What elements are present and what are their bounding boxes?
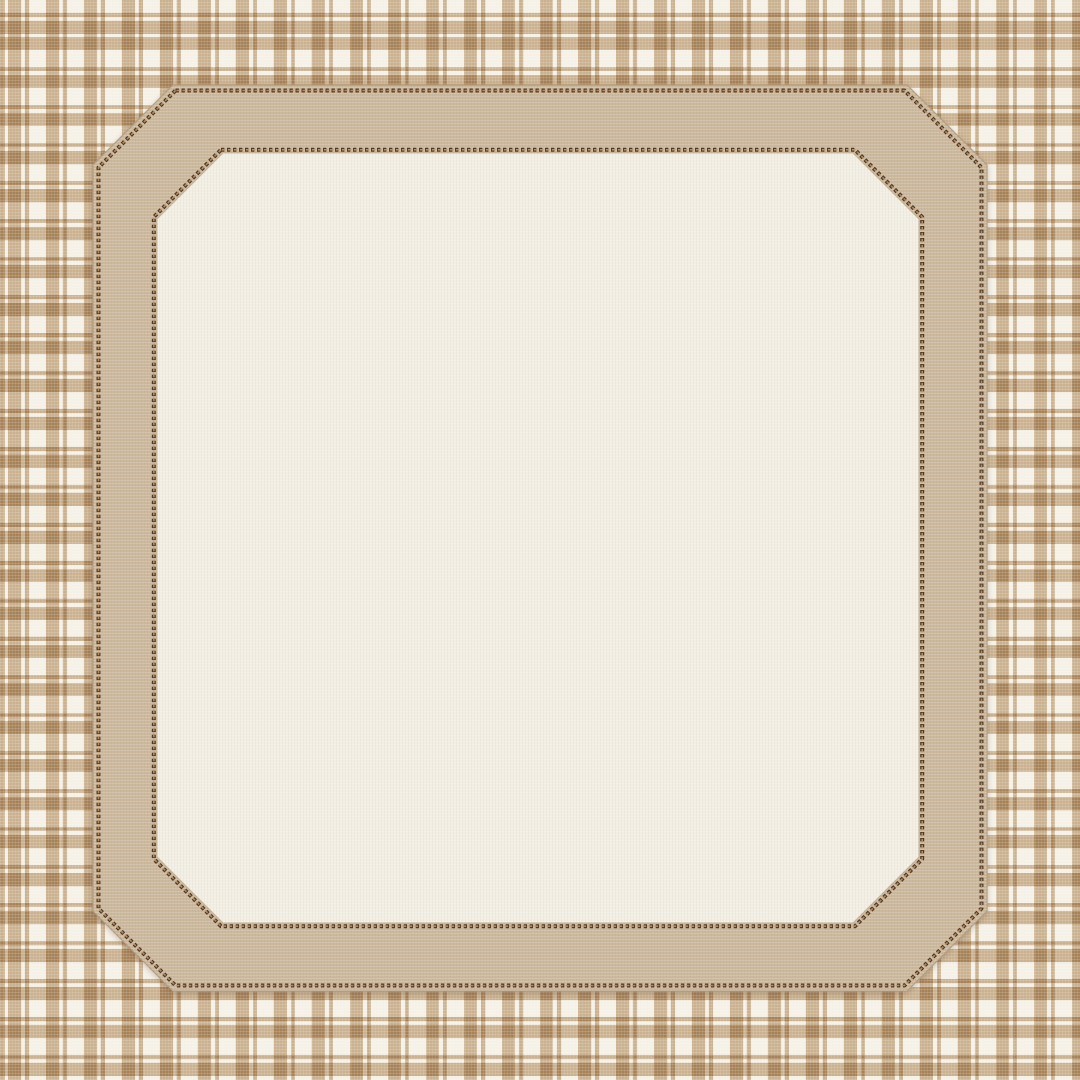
canvas bbox=[0, 0, 1080, 1080]
inner-panel bbox=[157, 153, 919, 923]
frame-graphic bbox=[0, 0, 1080, 1080]
